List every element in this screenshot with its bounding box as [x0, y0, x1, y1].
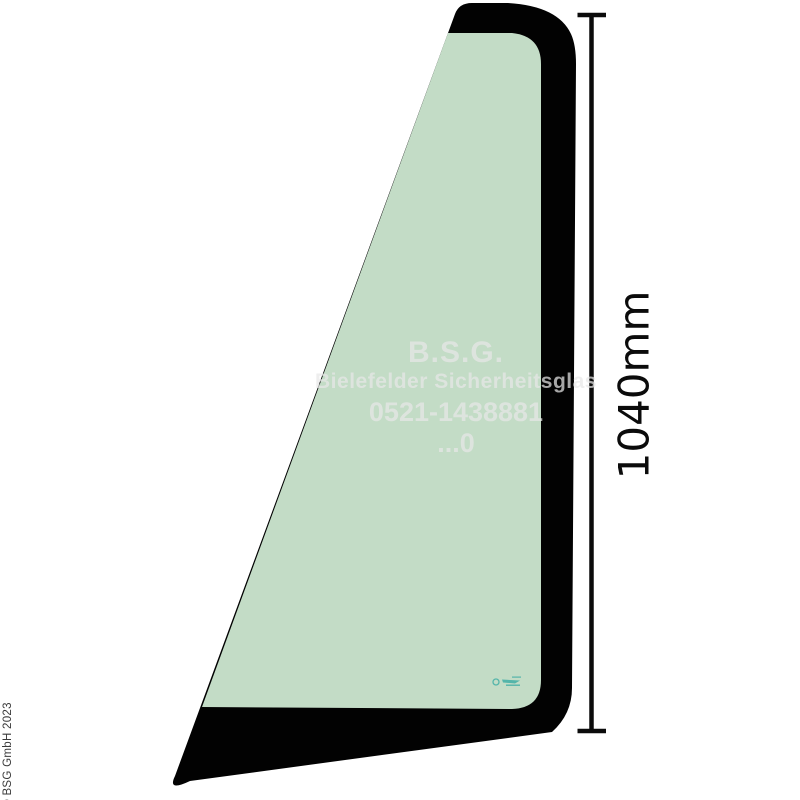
copyright-note: © BSG GmbH 2023	[2, 702, 14, 800]
dimension-line	[578, 15, 607, 731]
dimension-label: 1040mm	[610, 291, 659, 480]
glass-pane-drawing	[0, 0, 800, 800]
product-image: B.S.G. Bielefelder Sicherheitsglas 0521-…	[0, 0, 800, 800]
glass-surface	[202, 33, 541, 709]
